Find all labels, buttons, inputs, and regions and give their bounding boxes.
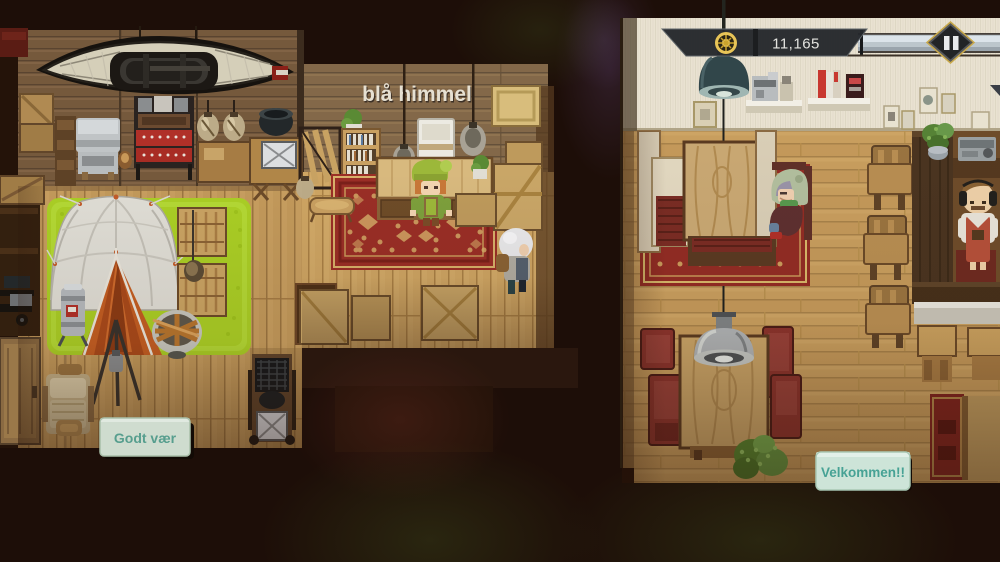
- svg-text:11,165: 11,165: [772, 36, 820, 53]
- svg-text:Godt vær: Godt vær: [114, 430, 177, 446]
- svg-text:Velkommen!!: Velkommen!!: [821, 465, 905, 480]
- svg-text:blå himmel: blå himmel: [362, 83, 472, 106]
